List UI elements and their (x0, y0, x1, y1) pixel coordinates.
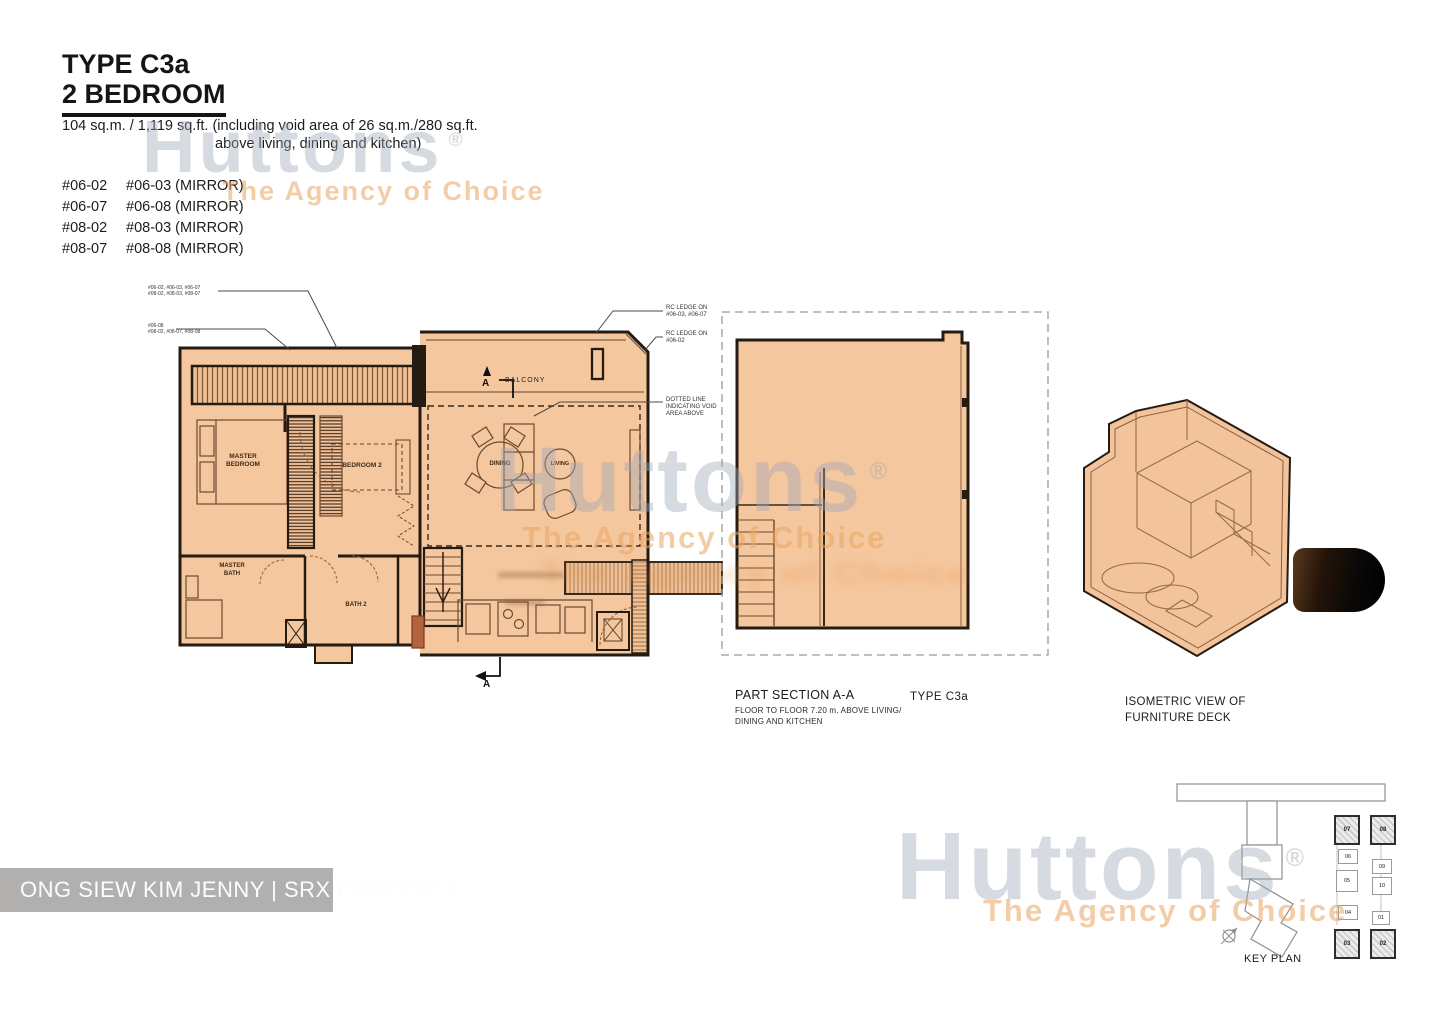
stack-unit: 09 (1372, 859, 1392, 874)
room-label-master-bedroom: MASTERBEDROOM (212, 453, 274, 468)
area-text-line1: 104 sq.m. / 1,119 sq.ft. (including void… (62, 118, 478, 134)
part-section-drawing (722, 312, 1048, 655)
room-label-bedroom2: BEDROOM 2 (330, 462, 394, 470)
dark-photo-artifact (1293, 548, 1385, 612)
isometric-caption: ISOMETRIC VIEW OFFURNITURE DECK (1125, 694, 1246, 726)
stack-unit: 04 (1338, 905, 1358, 920)
unit-number-list: #06-02#06-03 (MIRROR) #06-07#06-08 (MIRR… (62, 176, 244, 260)
section-type-label: TYPE C3a (910, 691, 968, 703)
stack-unit: 01 (1372, 911, 1390, 925)
unit-row: #08-07#08-08 (MIRROR) (62, 239, 244, 260)
key-plan-label: KEY PLAN (1244, 953, 1302, 965)
unit-row: #06-02#06-03 (MIRROR) (62, 176, 244, 197)
stack-unit: 08 (1370, 815, 1396, 845)
room-label-living: LIVING (540, 461, 580, 469)
stack-unit: 05 (1336, 870, 1358, 892)
section-marker-a-bottom: A (483, 679, 490, 690)
rc-ledge-note-1: RC LEDGE ON#06-03, #06-07 (666, 305, 707, 319)
isometric-drawing (1084, 400, 1290, 656)
stack-unit: 02 (1370, 929, 1396, 959)
void-area-note: DOTTED LINEINDICATING VOIDAREA ABOVE (666, 397, 717, 418)
illegible-text-smudge (498, 572, 564, 578)
floorplan-page: TYPE C3a 2 BEDROOM 104 sq.m. / 1,119 sq.… (0, 0, 1440, 1012)
agent-watermark-bar: ONG SIEW KIM JENNY | SRX PROPERTY (0, 868, 333, 912)
page-title-type: TYPE C3a (62, 50, 190, 79)
unit-row: #06-07#06-08 (MIRROR) (62, 197, 244, 218)
plan-callout-2: #06-08#08-02, #08-07, #08-08 (148, 323, 200, 335)
room-label-dining: DINING (478, 461, 522, 469)
stack-unit: 03 (1334, 929, 1360, 959)
agent-name-text: ONG SIEW KIM JENNY | SRX PROPERTY (0, 877, 462, 903)
illegible-text-smudge (505, 600, 545, 605)
area-text-line2: above living, dining and kitchen) (215, 136, 421, 152)
unit-row: #08-02#08-03 (MIRROR) (62, 218, 244, 239)
room-label-bath2: BATH 2 (336, 602, 376, 610)
stack-unit: 10 (1372, 877, 1392, 895)
floor-plan-drawing (176, 291, 722, 681)
stack-unit: 06 (1338, 849, 1358, 864)
stack-unit: 07 (1334, 815, 1360, 845)
balcony-label: BALCONY (505, 377, 545, 384)
key-plan-unit-stack: 07 08 06 09 05 10 04 01 03 02 (1332, 813, 1408, 963)
rc-ledge-note-2: RC LEDGE ON#06-02 (666, 331, 707, 345)
section-subtitle-2: DINING AND KITCHEN (735, 717, 823, 726)
plan-callout-1: #06-02, #06-03, #06-07#08-02, #08-03, #0… (148, 285, 200, 297)
page-title-bedroom: 2 BEDROOM (62, 79, 226, 117)
section-subtitle-1: FLOOR TO FLOOR 7.20 m. ABOVE LIVING/ (735, 706, 902, 715)
room-label-master-bath: MASTERBATH (206, 563, 258, 578)
section-marker-a-top: A (482, 378, 489, 389)
section-title: PART SECTION A-A (735, 688, 854, 702)
